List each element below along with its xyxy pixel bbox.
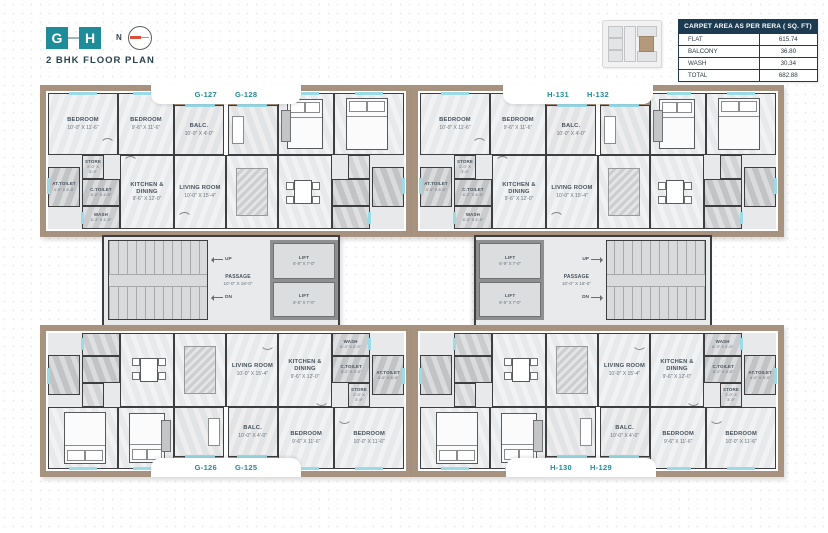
window-icon xyxy=(81,212,84,224)
room-living xyxy=(226,155,278,229)
room-dimension: 10'-0" X 11'-6" xyxy=(725,439,757,445)
unit-H-129: BEDROOM10'-0" X 11'-6" BEDROOM9'-6" X 11… xyxy=(598,331,778,471)
room-wash xyxy=(704,206,742,229)
unit-G-127: BEDROOM10'-0" X 11'-6" BEDROOM9'-6" X 11… xyxy=(46,91,226,231)
room-dimension: 6'-3" X 4'-9" xyxy=(91,218,112,223)
room-name: BALC. xyxy=(185,123,214,130)
unit-label-tab-h-top: H-131 H-132 xyxy=(503,85,653,104)
door-arc-icon xyxy=(100,138,115,153)
chair-icon xyxy=(312,182,320,190)
room-name: AT.TOILET xyxy=(748,369,772,374)
wardrobe-icon xyxy=(281,110,291,142)
table-title: CARPET AREA AS PER RERA ( SQ. FT) xyxy=(679,20,818,34)
window-icon xyxy=(774,178,777,194)
room-wash xyxy=(454,333,492,356)
chair-icon xyxy=(286,182,294,190)
room-store xyxy=(720,155,742,179)
dining-table-icon xyxy=(140,358,158,382)
dining-table-icon xyxy=(666,180,684,204)
room-dimension: 10'-0" X 4'-0" xyxy=(185,131,214,137)
room-wash: WASH6'-3" X 4'-9" xyxy=(704,333,742,356)
balcony-seat-icon xyxy=(232,116,244,144)
window-icon xyxy=(441,467,469,470)
room-bedroom-1 xyxy=(48,407,118,469)
sofa-rug-icon xyxy=(236,168,268,216)
window-icon xyxy=(727,92,755,95)
bed-icon xyxy=(659,99,695,149)
chair-icon xyxy=(530,372,538,380)
room-name: AT.TOILET xyxy=(376,369,400,374)
wing-h-top-row: BEDROOM10'-0" X 11'-6" BEDROOM9'-6" X 11… xyxy=(412,85,784,237)
bed-icon xyxy=(346,98,388,150)
unit-number-label: H-131 xyxy=(547,90,569,99)
unit-G-125: BEDROOM10'-0" X 11'-6" BEDROOM9'-6" X 11… xyxy=(226,331,406,471)
room-name: BEDROOM xyxy=(502,117,534,124)
room-dimension: 4'-0" X 8'-0" xyxy=(424,188,448,193)
window-icon xyxy=(453,212,456,224)
room-dimension: 9'-6" X 12'-0" xyxy=(121,196,173,202)
room-dimension: 9'-6" X 12'-0" xyxy=(651,374,703,380)
window-icon xyxy=(47,368,50,384)
room-attached-toilet: AT.TOILET4'-0" X 8'-0" xyxy=(48,167,80,207)
room-dimension: 9'-6" X 11'-6" xyxy=(502,125,534,131)
room-balcony: BALC.10'-0" X 4'-0" xyxy=(174,105,224,155)
lift-1: LIFT6'-9" X 7'-0" xyxy=(273,243,335,279)
room-name: KITCHEN & DINING xyxy=(493,182,545,196)
room-dimension: 10'-0" X 11'-6" xyxy=(67,125,99,131)
window-icon xyxy=(774,368,777,384)
stair-treads xyxy=(109,241,207,274)
room-dimension: 9'-6" X 11'-6" xyxy=(662,439,694,445)
passage: PASSAGE10'-0" X 16'-0" xyxy=(546,240,606,320)
chair-icon xyxy=(504,358,512,366)
room-name: BEDROOM xyxy=(353,431,385,438)
room-dimension: 2'-0" X 3'-9" xyxy=(455,165,475,175)
window-icon xyxy=(441,92,469,95)
door-arc-icon xyxy=(472,138,487,153)
room-name: BEDROOM xyxy=(662,431,694,438)
window-icon xyxy=(47,178,50,194)
room-dimension: 10'-0" X 4'-0" xyxy=(239,433,268,439)
room-balcony: BALC.10'-0" X 4'-0" xyxy=(600,407,650,457)
room-attached-toilet: AT.TOILET4'-0" X 8'-0" xyxy=(372,355,404,395)
room-store: STORE2'-0" X 3'-9" xyxy=(720,383,742,407)
unit-number-label: G-126 xyxy=(195,463,217,472)
dining-table-icon xyxy=(294,180,312,204)
room-living: LIVING ROOM10'-0" X 15'-4" xyxy=(226,333,278,407)
window-icon xyxy=(609,104,639,107)
room-attached-toilet: AT.TOILET4'-0" X 8'-0" xyxy=(420,167,452,207)
room-name: LIVING ROOM xyxy=(551,185,592,192)
room-balcony xyxy=(228,105,278,155)
chair-icon xyxy=(658,182,666,190)
room-bedroom-2: BEDROOM9'-6" X 11'-6" xyxy=(650,407,706,469)
room-kitchen-dining xyxy=(278,155,332,229)
chair-icon xyxy=(312,196,320,204)
room-dimension: 10'-0" X 4'-0" xyxy=(611,433,640,439)
compass-icon xyxy=(128,26,152,50)
unit-number-label: G-128 xyxy=(235,90,257,99)
room-dimension: 10'-0" X 11'-6" xyxy=(353,439,385,445)
header: G H N 2 BHK FLOOR PLAN xyxy=(46,27,155,66)
room-dimension: 4'-0" X 8'-0" xyxy=(748,376,772,381)
room-dimension: 4'-0" X 8'-0" xyxy=(376,376,400,381)
room-bedroom-1 xyxy=(706,93,776,155)
room-dimension: 9'-6" X 12'-0" xyxy=(493,196,545,202)
unit-label-tab-g-top: G-127 G-128 xyxy=(151,85,301,104)
room-dimension: 6'-2" X 4'-0" xyxy=(462,193,484,198)
room-store xyxy=(348,155,370,179)
wing-g-top-row: BEDROOM10'-0" X 11'-6" BEDROOM9'-6" X 11… xyxy=(40,85,412,237)
bed-icon xyxy=(287,99,323,149)
window-icon xyxy=(368,338,371,350)
logo-letter-g: G xyxy=(46,27,68,49)
north-label: N xyxy=(116,33,122,42)
unit-G-128 xyxy=(226,91,406,231)
chair-icon xyxy=(286,196,294,204)
unit-number-label: H-132 xyxy=(587,90,609,99)
stair-treads xyxy=(607,241,705,274)
door-arc-icon xyxy=(123,156,138,171)
balcony-seat-icon xyxy=(604,116,616,144)
room-living xyxy=(598,155,650,229)
door-arc-icon xyxy=(549,212,564,227)
room-name: AT.TOILET xyxy=(424,181,448,186)
chair-icon xyxy=(158,372,166,380)
room-attached-toilet: AT.TOILET4'-0" X 8'-0" xyxy=(744,355,776,395)
room-store xyxy=(82,383,104,407)
room-wash xyxy=(332,206,370,229)
stair-treads xyxy=(109,286,207,319)
window-icon xyxy=(667,92,691,95)
key-plan-thumbnail xyxy=(602,20,662,68)
room-dimension: 10'-0" X 11'-6" xyxy=(439,125,471,131)
room-wash xyxy=(82,333,120,356)
chair-icon xyxy=(132,372,140,380)
wing-g: BEDROOM10'-0" X 11'-6" BEDROOM9'-6" X 11… xyxy=(40,85,412,477)
door-arc-icon xyxy=(632,335,647,350)
room-name: KITCHEN & DINING xyxy=(121,182,173,196)
room-dimension: 6'-3" X 4'-9" xyxy=(713,345,734,350)
chair-icon xyxy=(530,358,538,366)
gh-logo: G H N xyxy=(46,27,155,49)
room-name: BALC. xyxy=(239,425,268,432)
lift-shaft: LIFT6'-9" X 7'-0" LIFT6'-9" X 7'-0" xyxy=(476,240,544,320)
room-wash: WASH6'-3" X 4'-9" xyxy=(454,206,492,229)
wardrobe-icon xyxy=(161,420,171,452)
room-dimension: 9'-6" X 12'-0" xyxy=(279,374,331,380)
room-attached-toilet xyxy=(420,355,452,395)
room-dimension: 9'-6" X 11'-6" xyxy=(290,439,322,445)
floor-plan-page: G H N 2 BHK FLOOR PLAN CARPET AREA AS PE… xyxy=(0,0,828,533)
page-title: 2 BHK FLOOR PLAN xyxy=(46,55,155,66)
window-icon xyxy=(667,467,691,470)
door-arc-icon xyxy=(686,391,701,406)
room-store xyxy=(454,383,476,407)
table-row: TOTAL682.88 xyxy=(679,70,818,82)
room-balcony xyxy=(546,407,596,457)
room-common-toilet xyxy=(704,179,742,206)
room-name: BALC. xyxy=(557,123,586,130)
chair-icon xyxy=(684,182,692,190)
room-name: KITCHEN & DINING xyxy=(279,360,331,374)
room-bedroom-1: BEDROOM10'-0" X 11'-6" xyxy=(706,407,776,469)
chair-icon xyxy=(658,196,666,204)
door-arc-icon xyxy=(709,409,724,424)
bed-icon xyxy=(718,98,760,150)
balcony-seat-icon xyxy=(208,418,220,446)
room-bedroom-1: BEDROOM10'-0" X 11'-6" xyxy=(420,93,490,155)
room-dimension: 6'-3" X 4'-9" xyxy=(341,345,362,350)
unit-number-label: G-127 xyxy=(195,90,217,99)
unit-number-label: H-129 xyxy=(590,463,612,472)
door-arc-icon xyxy=(337,409,352,424)
room-store: STORE2'-0" X 3'-9" xyxy=(348,383,370,407)
room-name: BEDROOM xyxy=(290,431,322,438)
window-icon xyxy=(740,212,743,224)
sofa-rug-icon xyxy=(608,168,640,216)
room-attached-toilet xyxy=(372,167,404,207)
window-icon xyxy=(237,104,267,107)
room-common-toilet xyxy=(82,356,120,383)
room-dimension: 2'-0" X 3'-9" xyxy=(349,393,369,403)
room-dimension: 10'-0" X 15'-4" xyxy=(179,193,220,199)
room-dimension: 6'-2" X 4'-0" xyxy=(340,370,362,375)
room-dimension: 9'-6" X 11'-6" xyxy=(130,125,162,131)
room-common-toilet xyxy=(454,356,492,383)
wing-h-bottom-row: BEDROOM10'-0" X 11'-6" BEDROOM9'-6" X 11… xyxy=(412,325,784,477)
room-common-toilet xyxy=(332,179,370,206)
room-kitchen-dining: KITCHEN & DINING9'-6" X 12'-0" xyxy=(278,333,332,407)
stair-treads xyxy=(607,286,705,319)
key-plan-highlighted-unit xyxy=(639,36,654,52)
chair-icon xyxy=(158,358,166,366)
table-row: WASH30.34 xyxy=(679,58,818,70)
room-bedroom-2 xyxy=(650,93,706,155)
window-icon xyxy=(355,467,383,470)
carpet-area-table: CARPET AREA AS PER RERA ( SQ. FT) FLAT61… xyxy=(678,19,818,82)
window-icon xyxy=(185,104,215,107)
room-name: LIVING ROOM xyxy=(179,185,220,192)
unit-H-131: BEDROOM10'-0" X 11'-6" BEDROOM9'-6" X 11… xyxy=(418,91,598,231)
room-wash: WASH6'-3" X 4'-9" xyxy=(82,206,120,229)
unit-H-132 xyxy=(598,91,778,231)
room-dimension: 6'-2" X 4'-0" xyxy=(712,370,734,375)
window-icon xyxy=(69,92,97,95)
window-icon xyxy=(419,178,422,194)
wardrobe-icon xyxy=(653,110,663,142)
bed-icon xyxy=(64,412,106,464)
room-attached-toilet xyxy=(48,355,80,395)
window-icon xyxy=(419,368,422,384)
unit-number-label: G-125 xyxy=(235,463,257,472)
room-wash: WASH6'-3" X 4'-9" xyxy=(332,333,370,356)
window-icon xyxy=(727,467,755,470)
lift-2: LIFT6'-9" X 7'-0" xyxy=(479,282,541,318)
room-bedroom-1 xyxy=(334,93,404,155)
room-name: BEDROOM xyxy=(725,431,757,438)
balcony-seat-icon xyxy=(580,418,592,446)
room-kitchen-dining xyxy=(650,155,704,229)
passage: PASSAGE10'-0" X 16'-0" xyxy=(208,240,268,320)
room-dimension: 4'-0" X 8'-0" xyxy=(52,188,76,193)
door-arc-icon xyxy=(177,212,192,227)
wing-h: BEDROOM10'-0" X 11'-6" BEDROOM9'-6" X 11… xyxy=(412,85,784,477)
lift-shaft: LIFT6'-9" X 7'-0" LIFT6'-9" X 7'-0" xyxy=(270,240,338,320)
lift-1: LIFT6'-9" X 7'-0" xyxy=(479,243,541,279)
room-common-toilet: C.TOILET6'-2" X 4'-0" xyxy=(454,179,492,206)
room-balcony xyxy=(600,105,650,155)
bed-icon xyxy=(501,413,537,463)
lift-2: LIFT6'-9" X 7'-0" xyxy=(273,282,335,318)
unit-label-tab-g-bottom: G-126 G-125 xyxy=(151,458,301,477)
unit-G-126 xyxy=(46,331,226,471)
logo-connector xyxy=(68,37,79,39)
core-h: UP DN PASSAGE10'-0" X 16'-0" LIFT6'-9" X… xyxy=(474,235,712,327)
bed-icon xyxy=(436,412,478,464)
dining-table-icon xyxy=(512,358,530,382)
room-living: LIVING ROOM10'-0" X 15'-4" xyxy=(174,155,226,229)
window-icon xyxy=(368,212,371,224)
room-common-toilet: C.TOILET6'-2" X 4'-0" xyxy=(704,356,742,383)
room-living xyxy=(174,333,226,407)
compass-needle-icon xyxy=(130,36,141,39)
room-name: BEDROOM xyxy=(130,117,162,124)
staircase xyxy=(108,240,208,320)
logo-letter-h: H xyxy=(79,27,101,49)
room-dimension: 10'-0" X 4'-0" xyxy=(557,131,586,137)
room-dimension: 2'-0" X 3'-9" xyxy=(721,393,741,403)
room-name: LIVING ROOM xyxy=(231,363,272,370)
room-dimension: 6'-3" X 4'-9" xyxy=(463,218,484,223)
window-icon xyxy=(453,338,456,350)
chair-icon xyxy=(132,358,140,366)
room-dimension: 10'-0" X 15'-4" xyxy=(603,371,644,377)
chair-icon xyxy=(504,372,512,380)
wing-g-bottom-row: BEDROOM10'-0" X 11'-6" BEDROOM9'-6" X 11… xyxy=(40,325,412,477)
room-dimension: 10'-0" X 15'-4" xyxy=(551,193,592,199)
room-kitchen-dining: KITCHEN & DINING9'-6" X 12'-0" xyxy=(120,155,174,229)
room-bedroom-1 xyxy=(420,407,490,469)
wardrobe-icon xyxy=(533,420,543,452)
table-row: BALCONY36.80 xyxy=(679,46,818,58)
room-attached-toilet xyxy=(744,167,776,207)
room-store: STORE2'-0" X 3'-9" xyxy=(454,155,476,179)
room-dimension: 10'-0" X 15'-4" xyxy=(231,371,272,377)
room-living: LIVING ROOM10'-0" X 15'-4" xyxy=(598,333,650,407)
room-living: LIVING ROOM10'-0" X 15'-4" xyxy=(546,155,598,229)
room-dimension: 6'-2" X 4'-0" xyxy=(90,193,112,198)
room-kitchen-dining xyxy=(120,333,174,407)
unit-number-label: H-130 xyxy=(550,463,572,472)
room-name: AT.TOILET xyxy=(52,181,76,186)
room-bedroom-1: BEDROOM10'-0" X 11'-6" xyxy=(48,93,118,155)
door-arc-icon xyxy=(260,335,275,350)
room-balcony xyxy=(174,407,224,457)
window-icon xyxy=(81,338,84,350)
window-icon xyxy=(69,467,97,470)
unit-H-130 xyxy=(418,331,598,471)
table-row: FLAT615.74 xyxy=(679,34,818,46)
window-icon xyxy=(402,368,405,384)
room-balcony: BALC.10'-0" X 4'-0" xyxy=(546,105,596,155)
door-arc-icon xyxy=(314,391,329,406)
unit-label-tab-h-bottom: H-130 H-129 xyxy=(506,458,656,477)
room-common-toilet: C.TOILET6'-2" X 4'-0" xyxy=(332,356,370,383)
window-icon xyxy=(557,104,587,107)
window-icon xyxy=(740,338,743,350)
door-arc-icon xyxy=(495,156,510,171)
room-kitchen-dining xyxy=(492,333,546,407)
room-name: KITCHEN & DINING xyxy=(651,360,703,374)
room-kitchen-dining: KITCHEN & DINING9'-6" X 12'-0" xyxy=(492,155,546,229)
window-icon xyxy=(355,92,383,95)
room-kitchen-dining: KITCHEN & DINING9'-6" X 12'-0" xyxy=(650,333,704,407)
room-name: BEDROOM xyxy=(439,117,471,124)
room-common-toilet: C.TOILET6'-2" X 4'-0" xyxy=(82,179,120,206)
bed-icon xyxy=(129,413,165,463)
room-name: BALC. xyxy=(611,425,640,432)
room-store: STORE2'-0" X 3'-9" xyxy=(82,155,104,179)
room-balcony: BALC.10'-0" X 4'-0" xyxy=(228,407,278,457)
room-name: LIVING ROOM xyxy=(603,363,644,370)
room-living xyxy=(546,333,598,407)
staircase xyxy=(606,240,706,320)
window-icon xyxy=(402,178,405,194)
room-dimension: 2'-0" X 3'-9" xyxy=(83,165,103,175)
sofa-rug-icon xyxy=(184,346,216,394)
chair-icon xyxy=(684,196,692,204)
room-bedroom-1: BEDROOM10'-0" X 11'-6" xyxy=(334,407,404,469)
sofa-rug-icon xyxy=(556,346,588,394)
core-g: UP DN PASSAGE10'-0" X 16'-0" LIFT6'-9" X… xyxy=(102,235,340,327)
room-name: BEDROOM xyxy=(67,117,99,124)
